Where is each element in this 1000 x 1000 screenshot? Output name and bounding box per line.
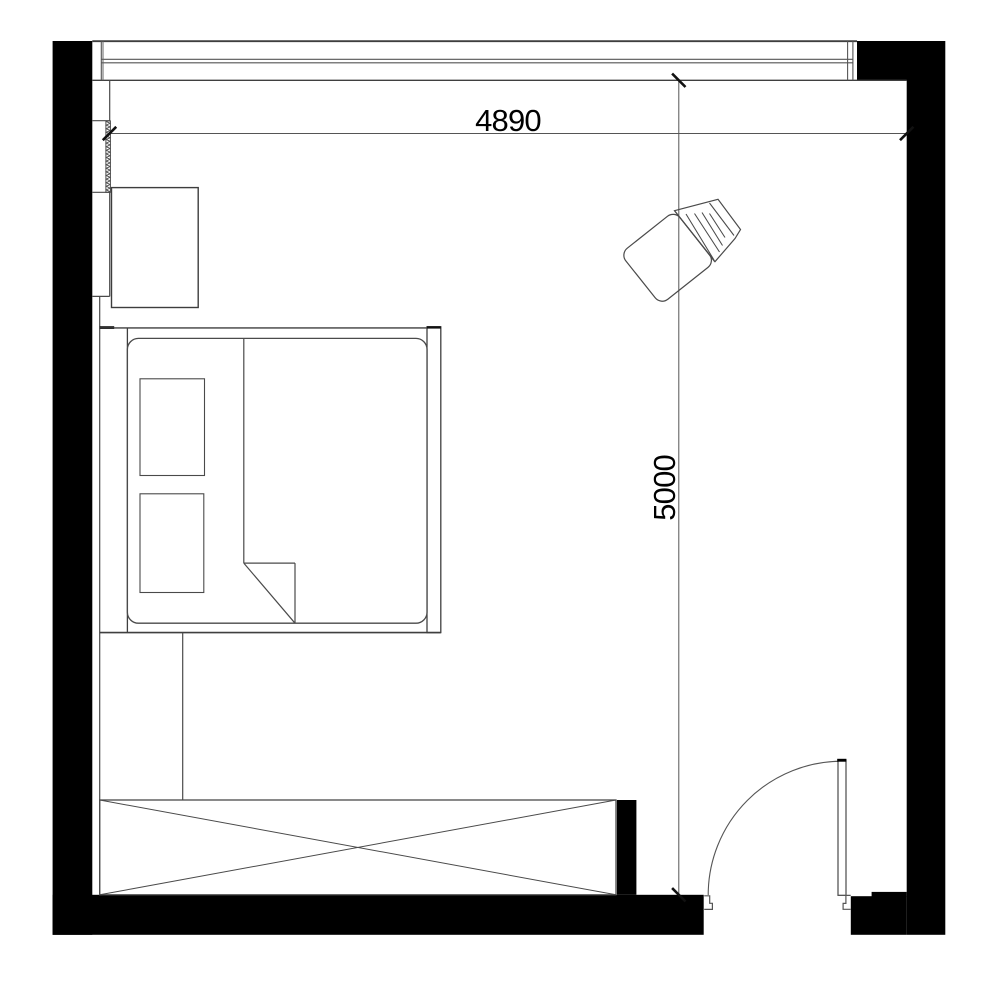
svg-text:5000: 5000 [647, 454, 682, 520]
svg-text:4890: 4890 [475, 103, 541, 138]
